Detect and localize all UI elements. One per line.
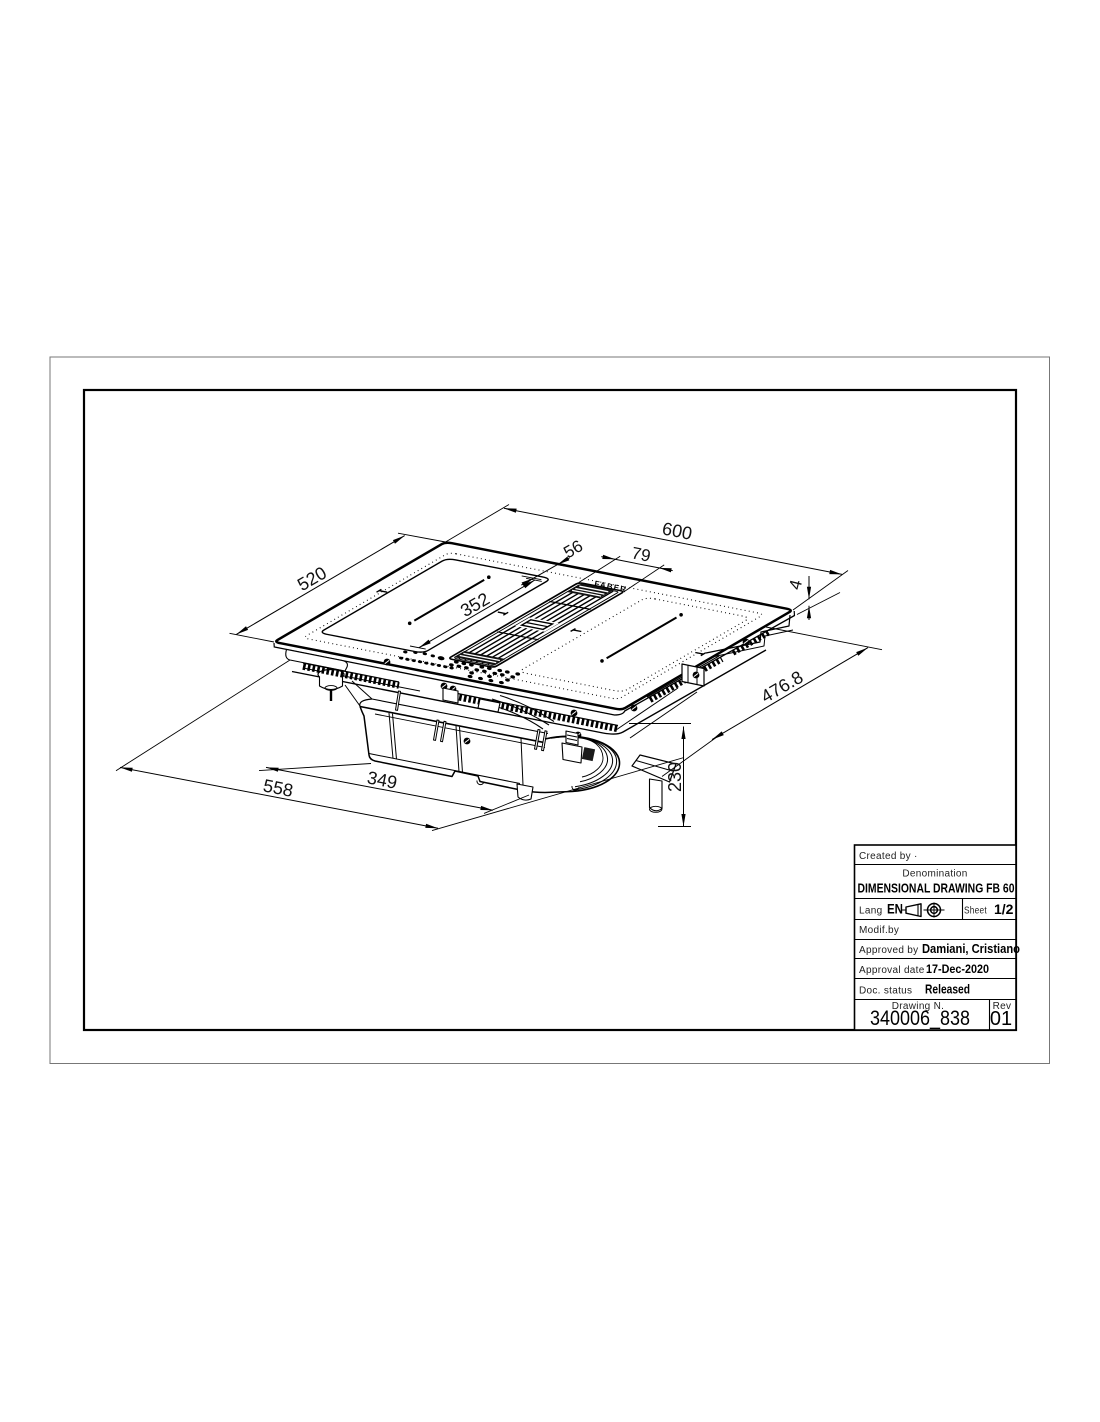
svg-text:DIMENSIONAL DRAWING FB 60: DIMENSIONAL DRAWING FB 60 [858, 882, 1015, 896]
svg-text:01: 01 [990, 1008, 1012, 1030]
svg-text:Damiani, Cristiano: Damiani, Cristiano [922, 942, 1020, 956]
svg-text:340006_838: 340006_838 [870, 1007, 970, 1030]
svg-text:79: 79 [630, 543, 652, 565]
svg-text:EN: EN [887, 902, 903, 917]
svg-text:Lang: Lang [859, 906, 882, 917]
svg-text:Sheet: Sheet [964, 906, 987, 917]
svg-text:17-Dec-2020: 17-Dec-2020 [926, 962, 989, 976]
svg-text:Approval date: Approval date [859, 965, 925, 976]
svg-text:Created by ·: Created by · [859, 851, 918, 862]
svg-text:Doc. status: Doc. status [859, 986, 912, 997]
svg-text:Released: Released [925, 983, 970, 997]
svg-text:Modif.by: Modif.by [859, 925, 899, 936]
svg-text:230: 230 [665, 762, 685, 792]
svg-text:Approved by: Approved by [859, 945, 918, 956]
svg-text:Denomination: Denomination [902, 869, 967, 880]
svg-text:1/2: 1/2 [994, 901, 1014, 917]
